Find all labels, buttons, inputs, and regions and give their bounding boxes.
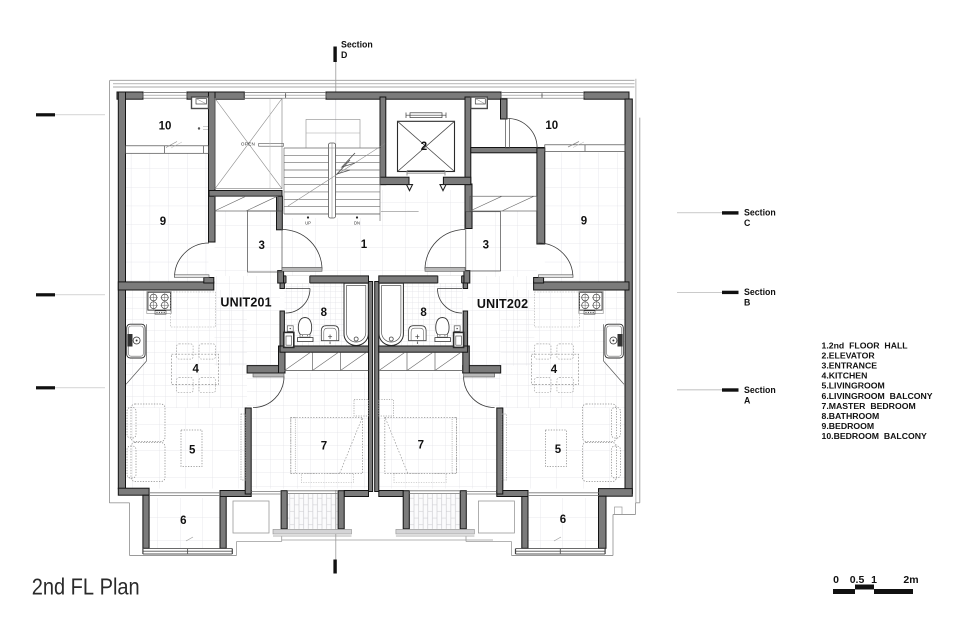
svg-text:6: 6 [560,514,566,526]
svg-text:4.KITCHEN: 4.KITCHEN [822,371,868,381]
svg-text:8: 8 [420,307,427,319]
svg-text:7: 7 [321,441,327,453]
svg-text:5: 5 [555,444,562,456]
svg-text:C: C [744,218,751,228]
svg-text:9: 9 [581,216,587,228]
svg-text:2: 2 [421,141,427,153]
svg-text:1.2nd FLOOR HALL: 1.2nd FLOOR HALL [822,341,909,351]
svg-text:7.MASTER BEDROOM: 7.MASTER BEDROOM [822,401,916,411]
svg-text:6: 6 [180,515,186,527]
svg-text:OPEN: OPEN [241,141,255,146]
svg-text:8: 8 [321,307,328,319]
svg-text:1: 1 [871,574,877,586]
svg-text:3: 3 [258,240,264,252]
svg-text:3.ENTRANCE: 3.ENTRANCE [822,361,878,371]
svg-text:UNIT202: UNIT202 [477,297,528,311]
svg-text:0.5: 0.5 [850,574,865,586]
svg-text:Section: Section [341,40,373,50]
svg-text:10.BEDROOM BALCONY: 10.BEDROOM BALCONY [822,431,928,441]
svg-text:Section: Section [744,208,776,218]
svg-text:DN: DN [354,221,360,226]
svg-text:3: 3 [483,239,489,251]
svg-text:5.LIVINGROOM: 5.LIVINGROOM [822,381,885,391]
svg-text:7: 7 [418,440,424,452]
svg-text:D: D [341,50,347,60]
svg-text:4: 4 [551,364,558,376]
svg-text:Section: Section [744,287,776,297]
svg-text:4: 4 [192,364,199,376]
svg-text:2m: 2m [903,574,918,586]
svg-text:9: 9 [160,216,166,228]
svg-text:A: A [744,395,751,405]
svg-text:5: 5 [189,444,196,456]
svg-text:10: 10 [159,121,172,133]
svg-text:Section: Section [744,385,776,395]
svg-text:6.LIVINGROOM BALCONY: 6.LIVINGROOM BALCONY [822,391,933,401]
svg-text:8.BATHROOM: 8.BATHROOM [822,411,880,421]
svg-text:0: 0 [833,574,839,586]
svg-text:1: 1 [361,239,368,251]
svg-text:10: 10 [545,120,558,132]
svg-text:B: B [744,298,750,308]
svg-text:9.BEDROOM: 9.BEDROOM [822,421,875,431]
svg-text:2.ELEVATOR: 2.ELEVATOR [822,351,876,361]
svg-text:UP: UP [305,221,311,226]
svg-text:UNIT201: UNIT201 [220,296,271,310]
svg-text:2nd FL Plan: 2nd FL Plan [32,574,140,600]
